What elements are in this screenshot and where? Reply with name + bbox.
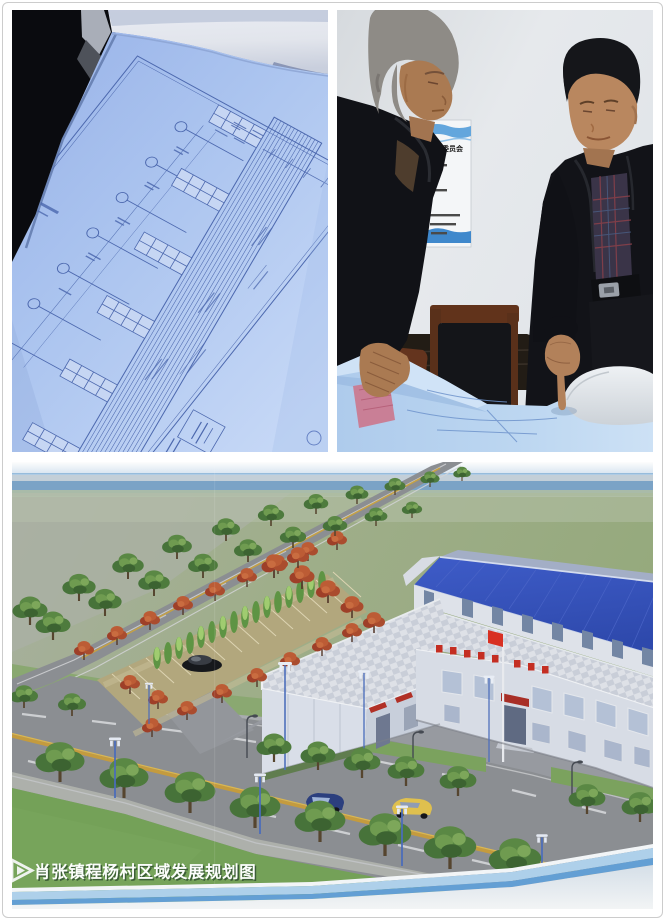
svg-text:肖张镇程杨村区域发展规划图: 肖张镇程杨村区域发展规划图 bbox=[34, 862, 256, 882]
